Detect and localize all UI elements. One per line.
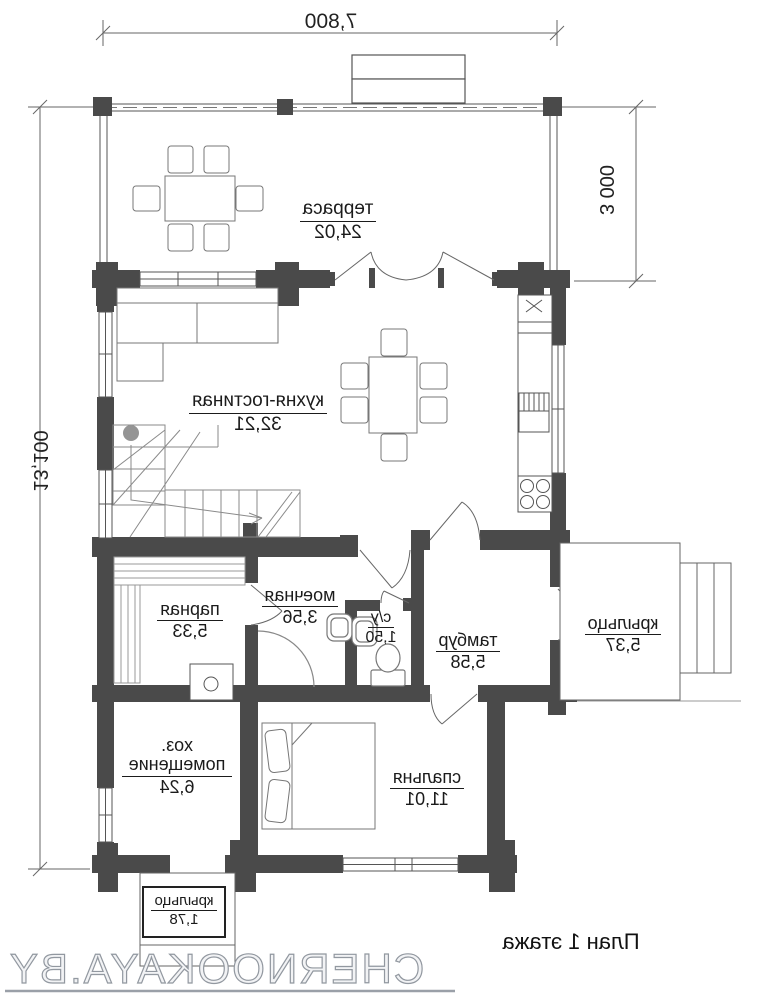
room-label-kitchen-living: кухня-гостиная 32,21 [158,391,358,435]
room-label-porch-right: крыльцо 5,37 [563,614,683,656]
room-area: 5,37 [563,635,683,655]
plan-title: План 1 этажа [471,929,671,955]
room-name: кухня-гостиная [189,391,327,414]
dimension-top: 7,800 [281,10,381,34]
room-name: терраса [300,199,377,222]
dimension-terrace-depth: 3 000 [595,150,617,230]
room-area: 5,58 [408,652,528,672]
room-label-steam-room: парная 5,33 [130,600,250,642]
room-name: с/у [368,609,394,628]
room-name: моечная [262,586,339,607]
room-area: 6,24 [122,777,232,797]
terrace-dining-set [133,146,263,251]
kitchen-counter [518,295,552,512]
floor-plan: 7,800 13,100 3 000 терраса 24,02 кухня-г… [0,0,761,1000]
watermark: CHERNOOKAYA.BY [8,948,424,990]
room-name: хоз. помещение [122,736,232,777]
folding-door [335,252,494,280]
room-label-terrace: терраса 24,02 [268,199,408,243]
room-name: крыльцо [585,614,662,635]
room-area: 32,21 [158,414,358,436]
room-name: крыльцо [151,893,216,911]
room-area: 1,78 [134,911,234,928]
room-area: 24,02 [268,222,408,244]
terrace-railing [93,97,562,281]
room-label-utility: хоз. помещение 6,24 [122,736,232,797]
room-name: парная [157,600,222,621]
sofa [117,288,278,381]
staircase [113,425,300,537]
room-label-vestibule: тамбур 5,58 [408,631,528,673]
floor-plan-drawing [0,0,761,1000]
room-name: спальня [390,768,464,789]
room-label-bedroom: спальня 11,01 [357,768,497,810]
room-label-porch-bottom: крыльцо 1,78 [134,893,234,928]
dimension-left: 13,100 [29,421,51,501]
room-area: 5,33 [130,621,250,641]
chimney [352,55,465,103]
room-area: 11,01 [357,789,497,809]
room-name: тамбур [436,631,501,652]
